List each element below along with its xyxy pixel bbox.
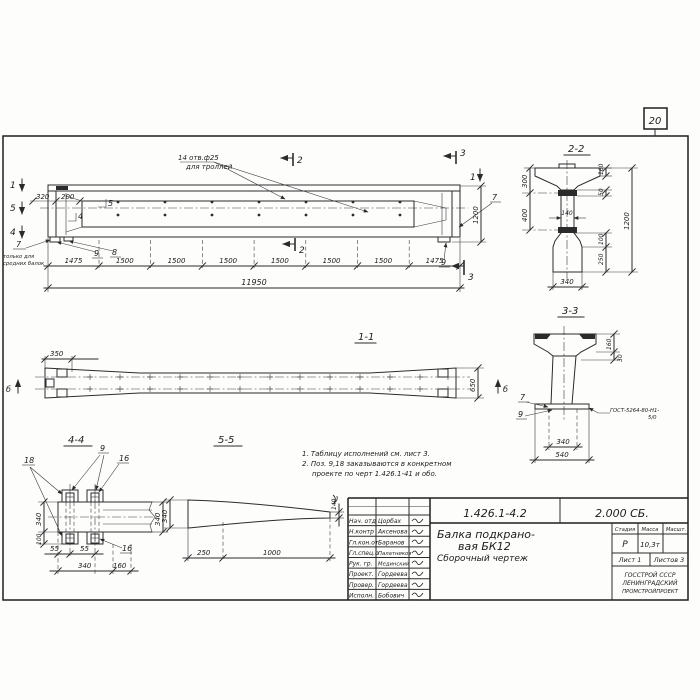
sig-role-5: Проект.	[349, 571, 374, 578]
base-plate	[535, 404, 589, 409]
bolt-group-bottom	[62, 532, 103, 544]
dim-350: 350	[50, 350, 64, 358]
sheets-total: Листов 3	[653, 556, 684, 564]
sig-role-4: Рук. гр.	[349, 561, 373, 568]
dim-340-sec33: 340	[556, 438, 570, 446]
sig-name-2: Баранов	[378, 539, 405, 546]
title-block: Нач. отд Цорбах Н.контр Аксенова Гл.кон.…	[333, 495, 688, 600]
doc-title-line2: вая БК12	[458, 540, 511, 553]
dim-100-sec44: 100	[36, 533, 43, 545]
dim-1200-right: 1200	[472, 206, 480, 224]
note-line1: 1. Таблицу исполнений см. лист 3.	[302, 450, 430, 458]
pos-7-sec33: 7	[520, 393, 526, 402]
top-flange	[535, 168, 600, 190]
bottom-block	[553, 233, 582, 272]
dim-340-bottom: 340	[78, 562, 92, 570]
plan-hole-marks	[87, 374, 451, 392]
dim-300: 300	[521, 174, 529, 188]
view-mark-b-left: б	[6, 380, 18, 394]
dim-55-b: 55	[80, 545, 89, 553]
sig-name-4: Мединский	[378, 562, 410, 568]
dim-1000: 1000	[263, 549, 281, 557]
callout-text-line2: для троллей	[185, 163, 233, 171]
pos-7-right: 7	[492, 193, 498, 202]
holes-callout: 14 отв.ф25 для троллей	[178, 154, 368, 212]
sheet-frame: 20	[3, 108, 688, 600]
section-1-1: 1-1 350 650	[6, 332, 508, 401]
sig-role-2: Гл.кон.от	[349, 539, 379, 546]
pos-16-top: 16	[119, 454, 129, 463]
rail-pad-mark	[56, 186, 68, 190]
sig-name-7: Бобович	[378, 592, 405, 599]
dim-340-left: 340	[35, 512, 43, 526]
stage-value: Р	[622, 540, 628, 550]
dim-160-sec44: 160	[113, 562, 127, 570]
svg-text:б: б	[503, 385, 508, 394]
mark-2-bottom: 2	[299, 246, 305, 256]
mark-5-inner: 5	[108, 199, 113, 208]
org-line2: ЛЕНИНГРАДСКИЙ	[622, 580, 679, 587]
seg-dim-0: 1475	[65, 257, 83, 265]
sig-name-3: Палатников	[378, 551, 411, 557]
svg-text:ГОСТ-5264-80-Н1-: ГОСТ-5264-80-Н1-	[610, 408, 659, 414]
seg-dim-4: 1500	[271, 257, 289, 265]
dim-320: 320	[36, 193, 50, 201]
drawing-canvas: 20	[0, 0, 700, 700]
mark-1-right: 1	[470, 173, 476, 183]
dim-total: 11950	[241, 278, 266, 287]
clamp-band-top	[558, 190, 577, 196]
dim-650: 650	[469, 378, 477, 392]
dim-160: 160	[598, 163, 605, 175]
column-scale: Масшт.	[666, 527, 686, 533]
pos-18: 18	[24, 456, 34, 465]
svg-text:5/0: 5/0	[648, 415, 657, 421]
page-number: 20	[649, 116, 662, 127]
weld-note: ГОСТ-5264-80-Н1- 5/0	[589, 408, 659, 421]
pos-9-left: 9	[94, 249, 99, 258]
bearing-pad-left-a	[50, 237, 60, 242]
section-5-5-title: 5-5	[218, 435, 234, 446]
pos-7-left: 7	[16, 240, 22, 249]
left-note-line2: средних балок	[3, 261, 45, 267]
bearing-pad-left-b	[64, 237, 73, 241]
sig-name-0: Цорбах	[378, 518, 402, 525]
dim-250: 250	[598, 253, 605, 265]
svg-text:б: б	[6, 385, 11, 394]
mark-1-left: 1	[10, 181, 16, 191]
section-marks-left: 1 5 4	[10, 179, 22, 238]
dim-55-a: 55	[50, 545, 59, 553]
pos-16-bottom: 16	[122, 544, 132, 553]
mark-5-left: 5	[10, 204, 16, 214]
dim-340-sec55: 340	[161, 509, 169, 523]
sig-name-1: Аксенова	[377, 529, 408, 536]
sig-role-6: Провер.	[349, 582, 374, 589]
doc-number: 1.426.1-4.2	[463, 507, 526, 520]
mark-3-bottom: 3	[468, 273, 474, 283]
flange-taper-outline	[188, 500, 330, 528]
column-mass: Масса	[642, 527, 659, 533]
section-2-2: 2-2 300 400 160 50 140 100	[521, 144, 638, 290]
plan-outline	[45, 368, 456, 398]
sig-role-7: Исполн.	[349, 592, 374, 599]
callout-text-line1: 14 отв.ф25	[178, 154, 219, 162]
dim-140: 140	[561, 210, 573, 217]
dim-200: 200	[61, 193, 75, 201]
column-stage: Стадия	[615, 527, 636, 533]
pos-9-sec44: 9	[100, 444, 105, 453]
dim-50: 50	[598, 188, 605, 196]
inner-marks: 5 4	[68, 199, 113, 221]
seg-dim-6: 1500	[374, 257, 392, 265]
org-line3: ПРОМСТРОЙПРОЕКТ	[622, 588, 679, 595]
sig-name-6: Гордеева	[378, 582, 408, 589]
clamp-band-bottom	[558, 227, 577, 233]
note-line3: проекте по черт 1.426.1-41 и обо.	[312, 470, 437, 478]
mark-3-top: 3	[460, 149, 466, 159]
sig-role-3: Гл.спец.о	[349, 550, 379, 557]
bolt-group-top	[62, 490, 103, 502]
section-1-1-title: 1-1	[358, 332, 374, 343]
dim-250: 250	[197, 549, 211, 557]
trolley-holes	[117, 201, 402, 217]
beam-outline	[40, 185, 468, 242]
sig-name-5: Гордеева	[378, 571, 408, 578]
mark-4-left: 4	[10, 228, 16, 238]
doc-title-line3: Сборочный чертеж	[437, 554, 529, 564]
seg-dim-1: 1500	[116, 257, 134, 265]
position-labels-left: 7 только для средних балок 9 8	[3, 240, 121, 267]
org-line1: ГОССТРОЙ СССР	[624, 572, 675, 579]
view-mark-b-right: б	[498, 380, 508, 394]
seg-dim-3: 1500	[219, 257, 237, 265]
drawing-sheet: 20	[0, 0, 700, 700]
sheet-number: Лист 1	[618, 556, 642, 564]
dim-30: 30	[617, 354, 624, 362]
notes: 1. Таблицу исполнений см. лист 3. 2. Поз…	[302, 450, 452, 478]
seg-dim-7: 1475	[426, 257, 444, 265]
section-2-2-title: 2-2	[568, 144, 584, 155]
dimension-chain: 1475 1500 1500 1500 1500 1500 1500 1475 …	[44, 238, 464, 292]
sig-role-1: Н.контр	[349, 529, 374, 536]
left-note-line1: только для	[3, 254, 35, 260]
doc-code: 2.000 СБ.	[595, 507, 649, 520]
dim-340-sec22: 340	[560, 278, 574, 286]
dim-160-sec33: 160	[606, 338, 613, 350]
mass-value: 10,3т	[640, 541, 661, 549]
mark-4-inner: 4	[78, 212, 83, 221]
dim-100: 100	[598, 233, 605, 245]
section-4-4-title: 4-4	[68, 435, 84, 446]
sig-role-0: Нач. отд	[349, 518, 376, 525]
bearing-pad-right	[438, 237, 450, 242]
section-3-3-title: 3-3	[562, 306, 578, 317]
position-labels-right: 7 9 1200	[439, 183, 501, 267]
main-elevation-view: 14 отв.ф25 для троллей 1 5 4 320 200 5	[3, 149, 501, 292]
section-4-4: 4-4 9	[22, 435, 168, 574]
note-line2: 2. Поз. 9,18 заказываются в конкретном	[302, 460, 452, 468]
dim-400: 400	[521, 208, 529, 222]
mark-2-top: 2	[297, 156, 303, 166]
pos-9-sec33: 9	[518, 410, 523, 419]
seg-dim-5: 1500	[323, 257, 341, 265]
pos-8: 8	[112, 248, 117, 257]
section-3-3: 3-3 160 30 7 9 ГОСТ-5264-80-Н1- 5/0	[516, 306, 659, 463]
seg-dim-2: 1500	[168, 257, 186, 265]
signature-table: Нач. отд Цорбах Н.контр Аксенова Гл.кон.…	[348, 498, 430, 600]
dim-1200-sec: 1200	[623, 212, 631, 230]
dim-540: 540	[555, 451, 569, 459]
